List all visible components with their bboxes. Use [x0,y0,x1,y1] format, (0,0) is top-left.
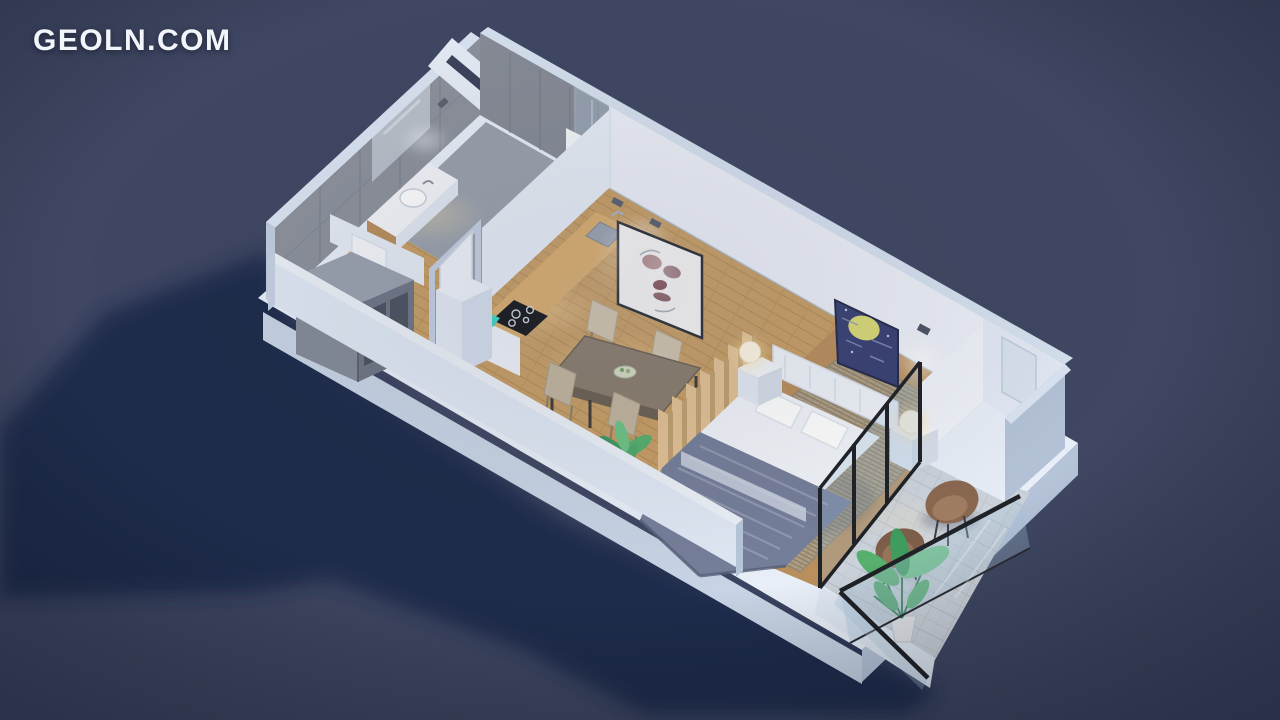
floorplan-render [0,0,1280,720]
screenshot-root: GEOLN.COM [0,0,1280,720]
decor-bowl [614,366,636,378]
geoln-watermark: GEOLN.COM [33,24,232,58]
